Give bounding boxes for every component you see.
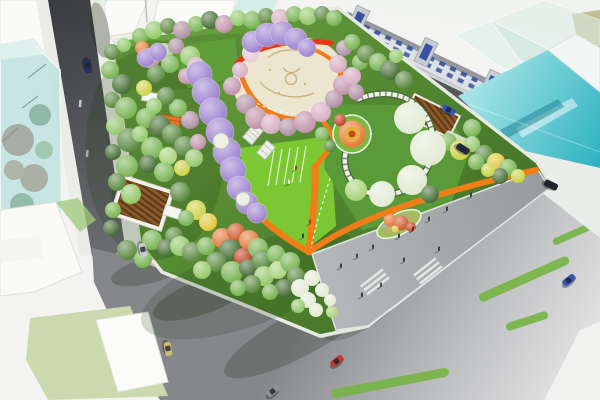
tree — [345, 179, 367, 201]
tree — [230, 280, 246, 296]
tree — [326, 10, 342, 26]
tree — [326, 306, 338, 318]
tree — [304, 270, 320, 286]
tree — [463, 119, 481, 137]
car-glass — [165, 345, 171, 351]
tree — [105, 144, 121, 160]
tree — [105, 202, 121, 218]
trellis-gap — [236, 192, 250, 206]
tree — [147, 65, 165, 83]
car-glass — [85, 63, 91, 69]
tree — [115, 97, 137, 119]
tree — [178, 210, 194, 226]
trellis-gap — [213, 133, 229, 149]
tree — [324, 140, 336, 152]
tree — [112, 74, 132, 94]
tree — [334, 114, 346, 126]
tree — [395, 71, 413, 89]
island-rock — [381, 224, 387, 228]
tree — [117, 38, 131, 52]
tree — [121, 184, 141, 204]
tree — [369, 181, 395, 207]
tree — [117, 240, 137, 260]
tree — [394, 102, 426, 134]
tree — [348, 84, 364, 100]
wisteria-segment — [298, 39, 316, 57]
tree — [199, 213, 217, 231]
tree — [315, 127, 329, 141]
tree — [344, 34, 360, 50]
tree — [468, 154, 484, 170]
tree — [221, 261, 243, 283]
white-filler-building — [0, 236, 44, 262]
tree — [103, 220, 119, 236]
tree — [389, 49, 403, 63]
tree — [243, 275, 261, 293]
tree — [146, 98, 162, 114]
tree — [193, 261, 211, 279]
tree — [185, 149, 203, 167]
wisteria-segment — [149, 43, 167, 61]
tree — [511, 169, 525, 183]
tree — [232, 62, 248, 78]
tree — [154, 162, 174, 182]
tree — [329, 55, 347, 73]
tree — [145, 21, 163, 39]
island-shrub-yellow — [392, 226, 399, 233]
tree — [261, 114, 281, 134]
tree — [309, 303, 323, 317]
tree — [136, 80, 152, 96]
tree — [291, 299, 305, 313]
wisteria-segment — [247, 203, 267, 223]
tree — [223, 77, 241, 95]
tree — [170, 182, 190, 202]
tree — [421, 185, 439, 203]
tree — [190, 134, 206, 150]
car-glass — [140, 246, 146, 252]
render-stage — [0, 0, 600, 400]
tree — [324, 294, 336, 306]
tree — [275, 279, 293, 297]
tree — [410, 130, 446, 166]
tree — [262, 284, 278, 300]
scene-canvas — [0, 0, 600, 400]
